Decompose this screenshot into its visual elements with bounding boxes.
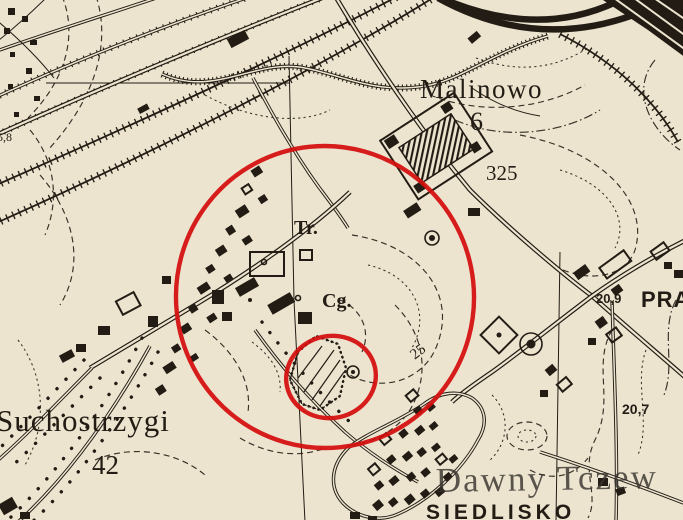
buildings-west-hamlet [59, 276, 171, 363]
label-road-325: 325 [486, 161, 518, 185]
watermark-dawny-tczew: Dawny Tczew [435, 457, 658, 500]
label-tr: Tr. [294, 217, 318, 239]
railway-bundle-top-right [424, 0, 683, 142]
label-elevation-207: 20,7 [622, 401, 649, 417]
contour-lines [18, 0, 680, 518]
historical-map-canvas: Malinowo 6 325 Tr. Cg. Suchostrzygi 42 2… [0, 0, 683, 520]
label-suchostrzygi-number: 42 [92, 450, 119, 480]
label-malinowo: Malinowo [420, 74, 543, 104]
label-malinowo-number: 6 [470, 107, 483, 136]
buildings-siedlisko [332, 385, 481, 520]
label-pra: PRA [641, 287, 683, 312]
map-drawing: Malinowo 6 325 Tr. Cg. Suchostrzygi 42 2… [0, 0, 683, 520]
label-elevation-58: 5,8 [0, 130, 12, 144]
label-cg: Cg. [322, 290, 351, 312]
label-suchostrzygi: Suchostrzygi [0, 403, 170, 438]
malinowo-estate [380, 31, 492, 245]
label-elevation-209: 20,9 [596, 291, 621, 306]
label-siedlisko: SIEDLISKO [426, 501, 575, 520]
label-contour-25: 25 [407, 341, 429, 363]
